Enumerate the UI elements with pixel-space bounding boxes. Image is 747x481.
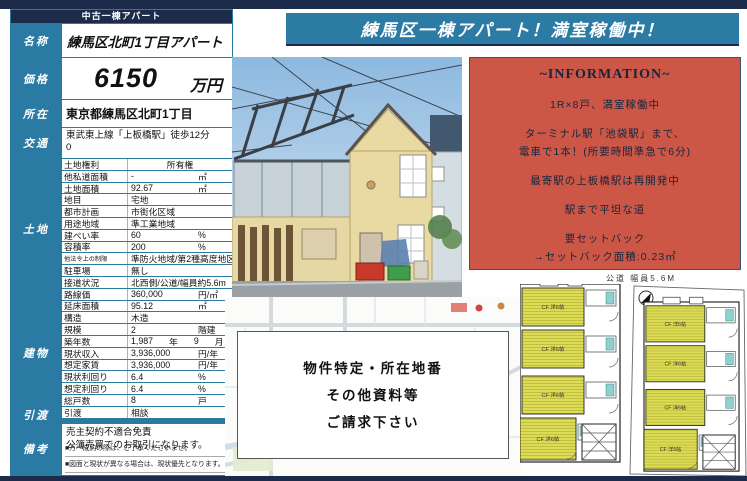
building-section-label: 建物: [11, 301, 61, 406]
overlay-line2: その他資料等: [327, 382, 420, 409]
location-value: 東京都練馬区北町1丁目: [62, 100, 232, 127]
field-value: 95.12: [131, 301, 153, 311]
land-row: 用途地域準工業地域: [62, 218, 232, 229]
access-line1: 東武東上線「上板橋駅」徒歩12分: [66, 130, 232, 142]
price-label: 価格: [11, 58, 61, 99]
land-row: 他私道面積-㎡: [62, 171, 232, 182]
field-label: 総戸数: [62, 395, 128, 406]
room-label: CF 洋6帖: [542, 303, 565, 311]
field-value: 92.67: [131, 183, 153, 193]
building-row: 想定家賃3,936,000円/年: [62, 360, 232, 371]
field-value: 3,936,000: [131, 360, 170, 370]
location-map: 物件特定・所在地番 その他資料等 ご請求下さい: [225, 297, 521, 477]
land-row: 地目宅地: [62, 194, 232, 205]
access-label: 交通: [11, 128, 61, 158]
info-line: ターミナル駅「池袋駅」まで、: [470, 126, 740, 141]
building-row: 延床面積95.12㎡: [62, 301, 232, 312]
price-cell: 6150 万円: [62, 58, 232, 99]
land-row: 土地面積92.67㎡: [62, 183, 232, 194]
footnotes: ■万一成約の際は、ご了承くださいませ。 ■図面と現状が異なる場合は、現状優先とな…: [65, 442, 229, 474]
info-line: 電車で1本！(所要時間準急で6分): [470, 144, 740, 159]
spec-table: 中古一棟アパート 名称 練馬区北町1丁目アパート 価格 6150 万円 所在 東…: [10, 9, 233, 476]
land-section-label: 土地: [11, 159, 61, 300]
information-title: ~INFORMATION~: [470, 67, 740, 83]
field-label: 接道状況: [62, 277, 128, 288]
building-row: 現状収入3,936,000円/年: [62, 348, 232, 359]
floor-plans: 公道 幅員5.6M: [520, 270, 747, 478]
price-value: 6150: [62, 63, 190, 94]
field-label: 他私道面積: [62, 171, 128, 182]
field-label: 想定利回り: [62, 383, 128, 394]
field-value: 8: [131, 395, 136, 405]
property-photo: [232, 57, 462, 300]
field-label: 駐車場: [62, 265, 128, 276]
field-label: 容積率: [62, 242, 128, 253]
floor-plan-drawing: CF 洋6帖 CF 洋6帖 CF 洋6帖 CF 洋6帖: [520, 284, 747, 478]
access-value: 東武東上線「上板橋駅」徒歩12分 0: [62, 128, 232, 158]
field-value: 2: [131, 325, 136, 335]
green-crate: [388, 266, 410, 280]
room-label: CF 洋6帖: [542, 391, 565, 399]
field-label: 地目: [62, 194, 128, 205]
field-label: 路線価: [62, 289, 128, 300]
handover-section: 引渡 引渡相談: [11, 407, 232, 423]
land-row: 接道状況北西側/公道/幅員約5.6m: [62, 277, 232, 288]
headline-banner: 練馬区一棟アパート！満室稼働中！: [286, 13, 739, 46]
land-row: 建ぺい率60%: [62, 230, 232, 241]
handover-row: 引渡相談: [62, 407, 232, 418]
building-row: 構造木造: [62, 312, 232, 323]
floor-plan-level: CF 洋6帖 CF 洋6帖 CF 洋6帖 CF 洋6帖: [520, 284, 620, 462]
name-label: 名称: [11, 24, 61, 57]
field-unit: %: [198, 230, 232, 240]
field-value: 準工業地域: [131, 217, 175, 230]
price-row: 価格 6150 万円: [11, 58, 232, 99]
property-flyer: 中古一棟アパート 名称 練馬区北町1丁目アパート 価格 6150 万円 所在 東…: [0, 0, 747, 481]
info-line: 最寄駅の上板橋駅は再開発中: [470, 173, 740, 188]
info-line: →セットバック面積:0.23㎡: [470, 249, 740, 264]
field-label: 想定家賃: [62, 360, 128, 371]
land-row: 都市計画市街化区域: [62, 206, 232, 217]
field-value: 6.4: [131, 384, 143, 394]
field-value: -: [131, 171, 134, 181]
remarks-cell: 売主契約不適合免責 公簿売買でのお取引になります。 ■万一成約の際は、ご了承くだ…: [62, 424, 232, 475]
information-box: ~INFORMATION~ 1R×8戸、満室稼働中 ターミナル駅「池袋駅」まで、…: [469, 57, 741, 270]
room-label: CF 洋6帖: [537, 435, 560, 443]
land-section: 土地 土地権利所有権 他私道面積-㎡ 土地面積92.67㎡ 地目宅地 都市計画市…: [11, 159, 232, 300]
field-value: 3,936,000: [131, 348, 170, 358]
info-line: 要セットバック: [470, 231, 740, 246]
field-unit: %: [198, 242, 232, 252]
field-label: 土地面積: [62, 183, 128, 194]
field-value: 6.4: [131, 372, 143, 382]
access-row: 交通 東武東上線「上板橋駅」徒歩12分 0: [11, 128, 232, 158]
land-row: 路線価360,000円/㎡: [62, 289, 232, 300]
access-line2: 0: [66, 142, 232, 154]
building-row: 想定利回り6.4%: [62, 383, 232, 394]
building-section: 建物 延床面積95.12㎡ 構造木造 規模2階建 築年数1,987年9月 現状収…: [11, 301, 232, 406]
name-row: 名称 練馬区北町1丁目アパート: [11, 24, 232, 57]
building-row: 総戸数8戸: [62, 395, 232, 406]
info-line: 駅まで平坦な道: [470, 202, 740, 217]
remarks-section: 備考 売主契約不適合免責 公簿売買でのお取引になります。 ■万一成約の際は、ご了…: [11, 424, 232, 475]
red-crate: [356, 263, 384, 280]
field-label: 現状利回り: [62, 371, 128, 382]
field-label: 他法令上の制限: [62, 253, 128, 264]
field-label: 引渡: [62, 407, 128, 418]
field-label: 現状収入: [62, 348, 128, 359]
field-value: 1,987: [131, 336, 153, 346]
remarks-line: 売主契約不適合免責: [66, 426, 230, 439]
field-label: 築年数: [62, 336, 128, 347]
room-label: CF 洋6帖: [542, 345, 565, 353]
property-name: 練馬区北町1丁目アパート: [62, 24, 232, 57]
top-border-strip: [0, 0, 747, 9]
remarks-section-label: 備考: [11, 424, 61, 475]
road-width-label: 公道 幅員5.6M: [606, 273, 676, 284]
field-label: 規模: [62, 324, 128, 335]
field-value: 200: [131, 242, 146, 252]
land-row: 他法令上の制限準防火地域/第2種高度地区: [62, 253, 232, 264]
building-row: 規模2階建: [62, 324, 232, 335]
land-row: 容積率200%: [62, 242, 232, 253]
field-label: 構造: [62, 312, 128, 323]
field-label: 用途地域: [62, 218, 128, 229]
field-value: 360,000: [131, 289, 163, 299]
building-row-built-year: 築年数1,987年9月: [62, 336, 232, 347]
doc-type-band: 中古一棟アパート: [11, 10, 232, 23]
footnote: ■万一成約の際は、ご了承くださいませ。: [65, 442, 229, 457]
bottom-border-strip: [0, 476, 747, 481]
location-row: 所在 東京都練馬区北町1丁目: [11, 100, 232, 127]
field-label: 建ぺい率: [62, 230, 128, 241]
request-overlay: 物件特定・所在地番 その他資料等 ご請求下さい: [237, 331, 509, 459]
info-line: 1R×8戸、満室稼働中: [470, 97, 740, 112]
field-value: 60: [131, 230, 141, 240]
footnote: ■図面と現状が異なる場合は、現状優先となります。: [65, 458, 229, 473]
handover-section-label: 引渡: [11, 407, 61, 423]
location-label: 所在: [11, 100, 61, 127]
land-row: 土地権利所有権: [62, 159, 232, 170]
field-label: 延床面積: [62, 301, 128, 312]
price-unit: 万円: [190, 72, 232, 99]
field-value2: 9: [194, 336, 199, 346]
field-value: 相談: [131, 406, 149, 419]
overlay-line1: 物件特定・所在地番: [303, 355, 443, 382]
field-label: 土地権利: [62, 159, 128, 170]
overlay-line3: ご請求下さい: [327, 409, 420, 436]
land-row: 駐車場無し: [62, 265, 232, 276]
building-row: 現状利回り6.4%: [62, 371, 232, 382]
field-label: 都市計画: [62, 206, 128, 217]
